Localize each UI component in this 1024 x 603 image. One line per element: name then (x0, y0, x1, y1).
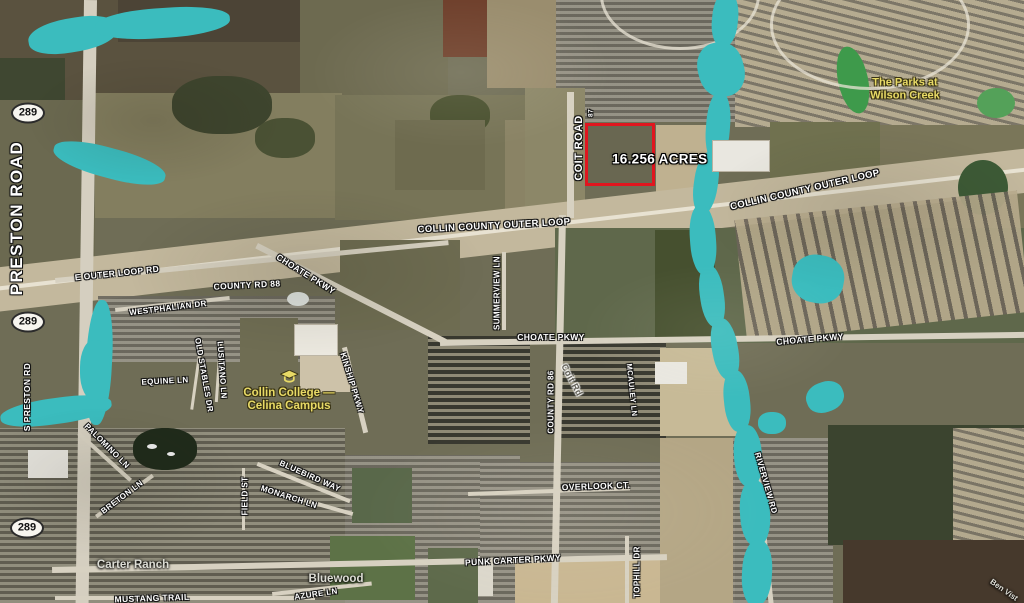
road-label-county-rd-86: COUNTY RD 86 (547, 370, 556, 433)
college-building (294, 324, 338, 356)
place-label-carter-ranch: Carter Ranch (97, 559, 169, 571)
highway-shield-289: 289 (10, 518, 44, 539)
warehouse-building (712, 140, 770, 172)
road-label-coit-road: COIT ROAD (573, 115, 585, 180)
golf-pond (977, 88, 1015, 118)
road-label-county-rd-88: COUNTY RD 88 (213, 278, 280, 291)
road-tophill (625, 536, 629, 603)
road-label-s-preston-rd: S PRESTON RD (22, 363, 32, 431)
road-label-preston-road: PRESTON ROAD (7, 141, 27, 296)
road-label-equine-ln: EQUINE LN (141, 375, 189, 386)
parcel-acres-label: 16.256 ACRES (612, 152, 707, 167)
road-label-mustang-trail: MUSTANG TRAIL (114, 592, 189, 603)
highway-shield-289: 289 (11, 312, 45, 333)
road-summerview (502, 252, 506, 330)
pond (133, 428, 197, 470)
satellite-map: 16.256 ACRES PRESTON ROADS PRESTON RDCOI… (0, 0, 1024, 603)
highway-shield-289: 289 (11, 103, 45, 124)
road-label-tophill-dr: TOPHILL DR (633, 546, 642, 598)
poi-label-collin-college-celina-campus: Collin College —Celina Campus (243, 370, 334, 414)
place-label-bluewood: Bluewood (309, 573, 364, 585)
road-label-field-st: FIELD ST (241, 477, 250, 516)
graduation-cap-icon (243, 370, 334, 387)
road-label-summerview-ln: SUMMERVIEW LN (493, 256, 502, 330)
road-label-choate-pkwy: CHOATE PKWY (517, 332, 585, 342)
poi-label-the-parks-at-wilson-creek: The Parks atWilson Creek (870, 76, 940, 101)
road-label-87: 87 (588, 109, 595, 117)
